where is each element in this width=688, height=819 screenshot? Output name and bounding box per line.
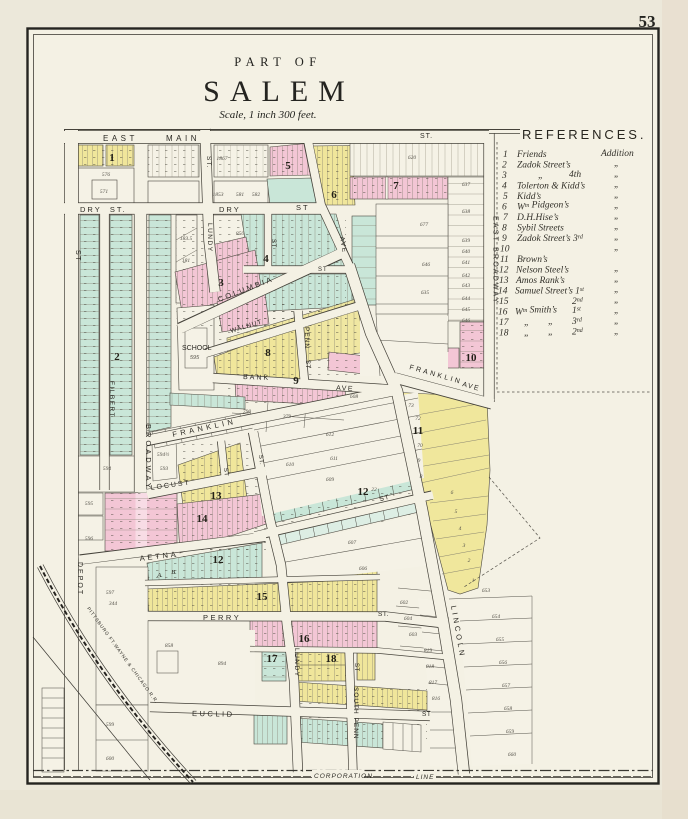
svg-text:606: 606 — [359, 566, 368, 572]
svg-text:SALEM: SALEM — [203, 75, 355, 108]
svg-text:12: 12 — [499, 266, 509, 276]
svg-text:ST: ST — [296, 203, 310, 212]
svg-text:„: „ — [548, 328, 553, 338]
svg-text:1: 1 — [503, 150, 508, 160]
svg-text:858: 858 — [165, 643, 174, 649]
svg-text:604: 604 — [404, 615, 413, 622]
svg-text:9: 9 — [418, 458, 421, 464]
svg-text:„: „ — [614, 169, 619, 179]
svg-text:LUNDY: LUNDY — [293, 648, 300, 678]
svg-text:„: „ — [524, 329, 529, 339]
svg-text:Sybil Streets: Sybil Streets — [517, 224, 564, 234]
svg-text:594½: 594½ — [157, 451, 169, 458]
svg-text:9: 9 — [293, 375, 299, 387]
svg-text:571: 571 — [100, 189, 109, 195]
svg-text:4th: 4th — [569, 170, 581, 180]
svg-text:„: „ — [614, 316, 619, 326]
svg-text:15: 15 — [499, 297, 509, 307]
svg-text:5: 5 — [285, 160, 291, 172]
svg-text:818: 818 — [426, 664, 435, 670]
svg-text:7: 7 — [393, 180, 399, 192]
svg-text:611: 611 — [330, 456, 338, 462]
svg-text:645: 645 — [462, 306, 471, 313]
svg-text:635: 635 — [421, 290, 430, 296]
svg-text:„: „ — [614, 221, 619, 231]
svg-text:17: 17 — [499, 318, 510, 328]
svg-text:1867: 1867 — [217, 156, 228, 162]
svg-text:8: 8 — [420, 474, 423, 480]
svg-text:„: „ — [614, 295, 619, 305]
svg-text:17: 17 — [267, 653, 279, 665]
svg-text:„: „ — [614, 158, 619, 168]
svg-text:2: 2 — [502, 161, 507, 171]
svg-text:„: „ — [614, 190, 619, 200]
svg-text:73: 73 — [408, 403, 414, 409]
svg-text:„: „ — [614, 284, 619, 294]
svg-text:656: 656 — [499, 660, 508, 666]
svg-text:642: 642 — [462, 272, 471, 279]
svg-text:646: 646 — [462, 317, 471, 324]
svg-text:344: 344 — [108, 600, 118, 607]
svg-text:4: 4 — [263, 253, 269, 265]
svg-text:596: 596 — [85, 536, 94, 542]
svg-text:18: 18 — [326, 653, 338, 665]
svg-text:816: 816 — [432, 696, 441, 702]
svg-text:A.: A. — [156, 572, 163, 579]
svg-text:602: 602 — [400, 600, 409, 606]
svg-text:6: 6 — [331, 189, 337, 201]
svg-text:BROADWAY: BROADWAY — [144, 424, 153, 491]
svg-text:„: „ — [614, 326, 619, 336]
svg-text:599: 599 — [106, 722, 115, 728]
svg-text:ST: ST — [422, 711, 431, 718]
svg-text:10: 10 — [500, 245, 510, 255]
svg-text:PERRY: PERRY — [203, 613, 241, 622]
svg-text:SCHOOL: SCHOOL — [182, 345, 212, 352]
svg-text:AVE: AVE — [336, 385, 354, 393]
svg-text:70: 70 — [417, 443, 423, 449]
svg-text:581: 581 — [236, 192, 245, 198]
svg-text:595: 595 — [85, 501, 94, 507]
svg-text:608: 608 — [350, 394, 359, 400]
svg-text:13: 13 — [499, 276, 509, 286]
svg-text:653: 653 — [482, 588, 491, 594]
svg-text:643: 643 — [462, 282, 471, 289]
svg-text:894: 894 — [218, 660, 227, 667]
svg-text:10: 10 — [466, 352, 478, 364]
svg-text:593: 593 — [160, 466, 169, 472]
svg-text:600: 600 — [106, 756, 115, 762]
svg-text:597: 597 — [106, 590, 115, 596]
svg-text:ST.: ST. — [257, 455, 264, 466]
svg-text:637: 637 — [462, 182, 471, 188]
svg-text:1: 1 — [109, 152, 115, 164]
svg-text:REFERENCES.: REFERENCES. — [522, 127, 646, 142]
svg-text:B.: B. — [171, 569, 177, 576]
svg-text:LUNDY: LUNDY — [206, 223, 213, 253]
svg-text:603: 603 — [409, 632, 418, 638]
svg-text:BANK: BANK — [243, 374, 270, 382]
svg-text:MAIN: MAIN — [166, 134, 200, 143]
svg-text:16: 16 — [299, 633, 311, 645]
svg-text:576: 576 — [102, 172, 111, 178]
svg-text:4: 4 — [502, 182, 507, 192]
svg-text:11: 11 — [500, 255, 509, 265]
svg-text:Zadok Street’s 3rd: Zadok Street’s 3rd — [517, 234, 584, 244]
svg-text:16: 16 — [498, 308, 508, 318]
svg-text:6: 6 — [451, 490, 454, 496]
svg-text:5: 5 — [455, 509, 458, 515]
svg-text:„: „ — [614, 200, 619, 210]
svg-text:Scale, 1 inch 300 feet.: Scale, 1 inch 300 feet. — [219, 109, 316, 121]
svg-text:Brown’s: Brown’s — [517, 255, 548, 265]
svg-text:CORPORATION: CORPORATION — [314, 773, 373, 780]
svg-text:2: 2 — [114, 351, 120, 363]
svg-text:1853: 1853 — [213, 192, 224, 198]
svg-text:„: „ — [524, 318, 529, 328]
svg-text:2: 2 — [468, 558, 471, 564]
svg-text:612: 612 — [326, 432, 335, 438]
svg-text:D.H.Hise’s: D.H.Hise’s — [516, 213, 559, 223]
svg-text:„: „ — [614, 274, 619, 284]
svg-text:12: 12 — [358, 486, 370, 498]
svg-text:PENN: PENN — [303, 327, 310, 349]
svg-text:660: 660 — [508, 752, 517, 758]
svg-text:655: 655 — [496, 637, 505, 643]
svg-text:3: 3 — [218, 277, 224, 289]
svg-text:EAST: EAST — [103, 134, 138, 143]
svg-text:819: 819 — [424, 648, 433, 654]
svg-text:Friends: Friends — [516, 150, 547, 160]
svg-text:22: 22 — [371, 487, 377, 493]
svg-text:646: 646 — [422, 261, 431, 268]
svg-text:677: 677 — [420, 222, 429, 228]
svg-text:654: 654 — [492, 613, 501, 620]
svg-text:379: 379 — [282, 414, 292, 420]
svg-text:„: „ — [614, 242, 619, 252]
svg-text:18: 18 — [499, 329, 509, 339]
svg-text:8: 8 — [265, 347, 271, 359]
svg-text:ST.: ST. — [205, 156, 212, 168]
svg-text:13: 13 — [211, 490, 223, 502]
svg-text:609: 609 — [326, 477, 335, 483]
svg-text:610: 610 — [286, 462, 295, 468]
svg-text:620: 620 — [408, 155, 417, 161]
svg-text:790: 790 — [243, 409, 252, 415]
svg-text:Nelson Steel’s: Nelson Steel’s — [515, 266, 569, 276]
svg-text:8: 8 — [502, 224, 507, 234]
svg-text:644: 644 — [462, 295, 471, 302]
svg-text:„: „ — [614, 232, 619, 242]
svg-text:1: 1 — [472, 578, 475, 584]
svg-text:ST: ST — [318, 267, 328, 273]
svg-text:Zadok Street’s: Zadok Street’s — [517, 161, 571, 171]
svg-text:595: 595 — [190, 355, 200, 361]
svg-text:Amos Rank’s: Amos Rank’s — [515, 276, 565, 286]
svg-text:657: 657 — [502, 683, 511, 689]
svg-text:LINE: LINE — [416, 774, 434, 781]
svg-text:14: 14 — [498, 287, 508, 297]
svg-text:DRY ST.: DRY ST. — [80, 205, 127, 214]
svg-text:638: 638 — [462, 209, 471, 215]
svg-text:14: 14 — [197, 513, 209, 525]
svg-text:659: 659 — [506, 729, 515, 735]
svg-text:ST.: ST. — [378, 611, 389, 618]
svg-text:„: „ — [614, 179, 619, 189]
svg-text:5: 5 — [503, 192, 508, 202]
svg-text:ST: ST — [270, 239, 276, 248]
svg-text:183.5: 183.5 — [180, 236, 193, 242]
svg-text:„: „ — [614, 305, 619, 315]
svg-text:PART OF: PART OF — [234, 55, 321, 69]
svg-text:ST: ST — [74, 250, 81, 262]
svg-text:11: 11 — [413, 425, 423, 437]
svg-text:SOUTH PENN: SOUTH PENN — [352, 687, 359, 740]
svg-text:4: 4 — [459, 525, 462, 532]
svg-text:53: 53 — [639, 12, 656, 31]
svg-text:6: 6 — [502, 203, 507, 213]
svg-text:607: 607 — [348, 540, 357, 546]
svg-text:640: 640 — [462, 248, 471, 255]
svg-text:639: 639 — [462, 238, 471, 244]
svg-text:658: 658 — [504, 706, 513, 712]
svg-text:850: 850 — [236, 231, 245, 237]
svg-text:„: „ — [614, 211, 619, 221]
svg-text:ST: ST — [304, 360, 310, 369]
svg-text:ST: ST — [222, 468, 229, 477]
svg-text:Tolerton & Kidd’s: Tolerton & Kidd’s — [517, 182, 585, 192]
svg-text:594: 594 — [103, 465, 112, 472]
svg-text:EUCLID: EUCLID — [192, 709, 235, 719]
svg-text:DRY: DRY — [219, 205, 241, 214]
svg-text:72: 72 — [415, 416, 421, 422]
svg-text:ST: ST — [353, 663, 359, 672]
svg-text:582: 582 — [252, 192, 261, 198]
svg-text:9: 9 — [502, 234, 507, 244]
svg-text:12: 12 — [213, 554, 225, 566]
svg-text:3: 3 — [501, 171, 507, 181]
svg-text:181: 181 — [182, 258, 191, 264]
svg-text:„: „ — [548, 317, 553, 327]
svg-text:641: 641 — [462, 259, 471, 266]
svg-text:Samuel Street’s 1st: Samuel Street’s 1st — [515, 287, 584, 297]
svg-text:817: 817 — [429, 680, 438, 686]
svg-text:15: 15 — [257, 591, 269, 603]
svg-text:FILBERT: FILBERT — [108, 381, 115, 418]
svg-text:DEPOT: DEPOT — [76, 562, 83, 596]
svg-text:„: „ — [538, 171, 543, 181]
svg-text:ST.: ST. — [420, 133, 433, 140]
svg-text:3: 3 — [462, 543, 466, 549]
svg-text:„: „ — [614, 263, 619, 273]
